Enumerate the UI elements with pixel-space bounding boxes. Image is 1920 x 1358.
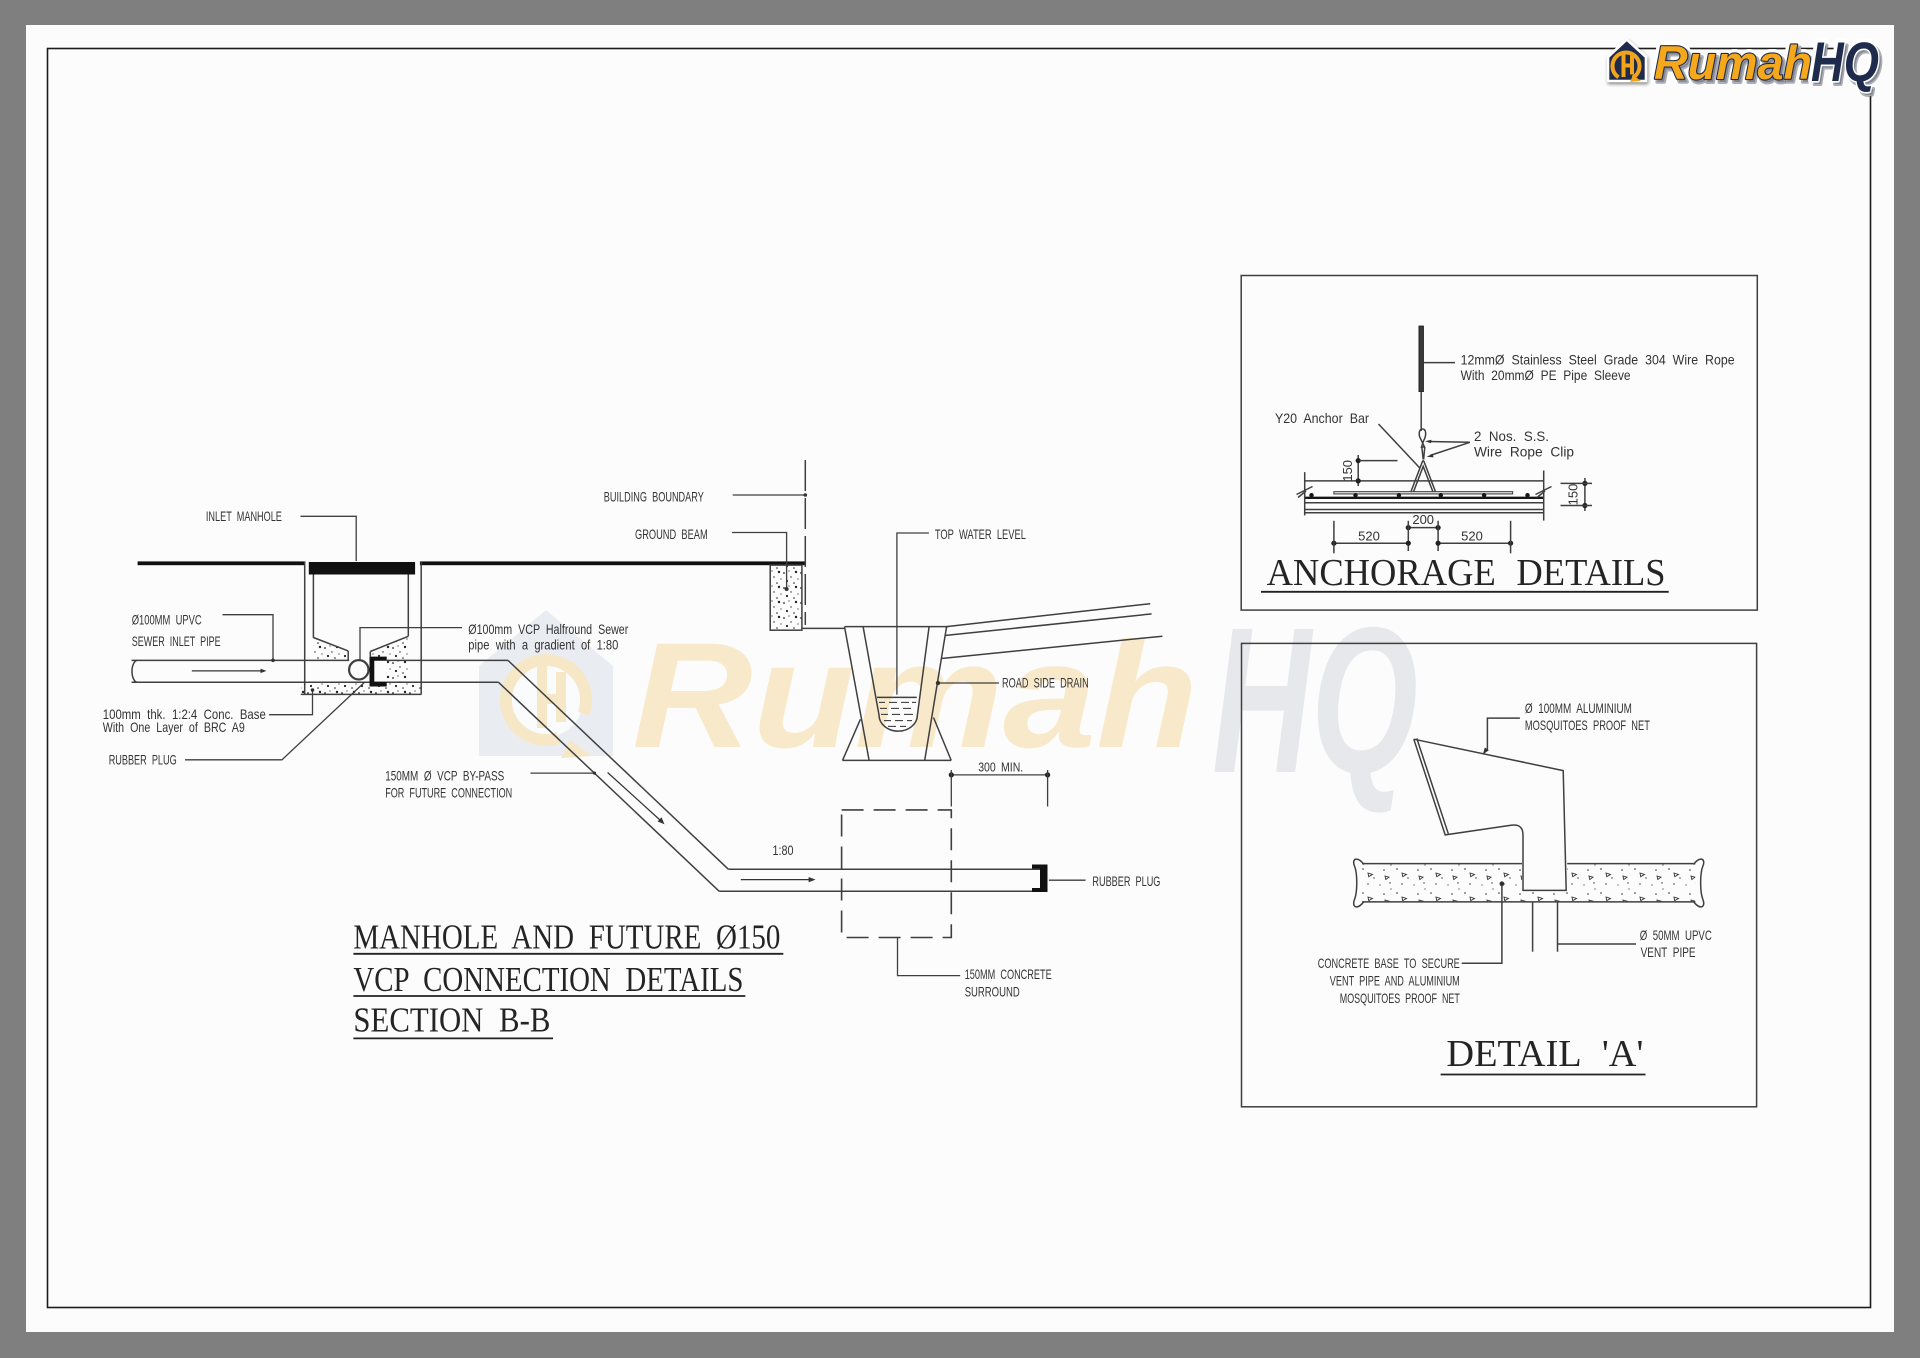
- svg-text:Rumah: Rumah: [632, 611, 1198, 779]
- svg-text:With One Layer of BRC A9: With One Layer of BRC A9: [103, 719, 245, 735]
- svg-text:RUBBER PLUG: RUBBER PLUG: [1092, 873, 1160, 889]
- svg-text:HQ: HQ: [1212, 585, 1418, 817]
- svg-text:VENT PIPE AND ALUMINIUM: VENT PIPE AND ALUMINIUM: [1330, 973, 1460, 989]
- svg-text:Y20 Anchor Bar: Y20 Anchor Bar: [1275, 410, 1369, 426]
- svg-text:BUILDING BOUNDARY: BUILDING BOUNDARY: [604, 489, 704, 505]
- svg-text:GROUND BEAM: GROUND BEAM: [635, 526, 708, 542]
- svg-text:520: 520: [1358, 529, 1380, 544]
- svg-text:1:80: 1:80: [773, 842, 794, 858]
- svg-text:Wire Rope Clip: Wire Rope Clip: [1474, 444, 1574, 460]
- svg-text:DETAIL 'A': DETAIL 'A': [1446, 1033, 1643, 1075]
- svg-text:Ø 50MM UPVC: Ø 50MM UPVC: [1640, 927, 1712, 943]
- svg-text:150: 150: [1340, 460, 1355, 482]
- svg-text:12mmØ Stainless Steel Grade 30: 12mmØ Stainless Steel Grade 304 Wire Rop…: [1461, 352, 1735, 368]
- svg-text:Ø100mm VCP Halfround Sewer: Ø100mm VCP Halfround Sewer: [468, 621, 628, 637]
- svg-text:INLET MANHOLE: INLET MANHOLE: [206, 508, 282, 524]
- svg-text:150MM CONCRETE: 150MM CONCRETE: [965, 966, 1052, 982]
- svg-text:SECTION B-B: SECTION B-B: [353, 1001, 550, 1040]
- svg-text:VCP CONNECTION DETAILS: VCP CONNECTION DETAILS: [353, 960, 743, 999]
- svg-text:MOSQUITOES PROOF NET: MOSQUITOES PROOF NET: [1340, 990, 1460, 1006]
- svg-text:TOP WATER LEVEL: TOP WATER LEVEL: [935, 526, 1026, 542]
- svg-text:300 MIN.: 300 MIN.: [978, 760, 1023, 775]
- svg-text:HQ: HQ: [1811, 30, 1879, 93]
- svg-text:150: 150: [1566, 484, 1581, 506]
- svg-text:VENT PIPE: VENT PIPE: [1641, 944, 1696, 960]
- svg-text:MANHOLE AND FUTURE Ø150: MANHOLE AND FUTURE Ø150: [353, 918, 780, 957]
- svg-text:MOSQUITOES PROOF NET: MOSQUITOES PROOF NET: [1525, 717, 1650, 733]
- svg-text:SURROUND: SURROUND: [965, 984, 1020, 1000]
- svg-text:RUBBER PLUG: RUBBER PLUG: [109, 752, 177, 768]
- svg-text:2 Nos. S.S.: 2 Nos. S.S.: [1474, 428, 1549, 444]
- svg-text:ROAD SIDE DRAIN: ROAD SIDE DRAIN: [1002, 675, 1089, 691]
- svg-text:FOR FUTURE CONNECTION: FOR FUTURE CONNECTION: [385, 784, 512, 800]
- svg-text:ANCHORAGE DETAILS: ANCHORAGE DETAILS: [1267, 552, 1666, 594]
- svg-text:Rumah: Rumah: [1654, 36, 1812, 89]
- svg-text:With 20mmØ PE Pipe Sleeve: With 20mmØ PE Pipe Sleeve: [1461, 367, 1631, 383]
- svg-text:Ø 100MM ALUMINIUM: Ø 100MM ALUMINIUM: [1525, 700, 1632, 716]
- svg-text:200: 200: [1412, 512, 1434, 527]
- svg-text:520: 520: [1461, 529, 1483, 544]
- svg-text:150MM Ø VCP BY-PASS: 150MM Ø VCP BY-PASS: [385, 768, 504, 784]
- svg-text:SEWER INLET PIPE: SEWER INLET PIPE: [132, 633, 221, 649]
- svg-text:CONCRETE BASE TO SECURE: CONCRETE BASE TO SECURE: [1318, 955, 1460, 971]
- svg-text:Ø100MM UPVC: Ø100MM UPVC: [132, 612, 202, 628]
- svg-text:pipe with a gradient of 1:80: pipe with a gradient of 1:80: [468, 637, 618, 653]
